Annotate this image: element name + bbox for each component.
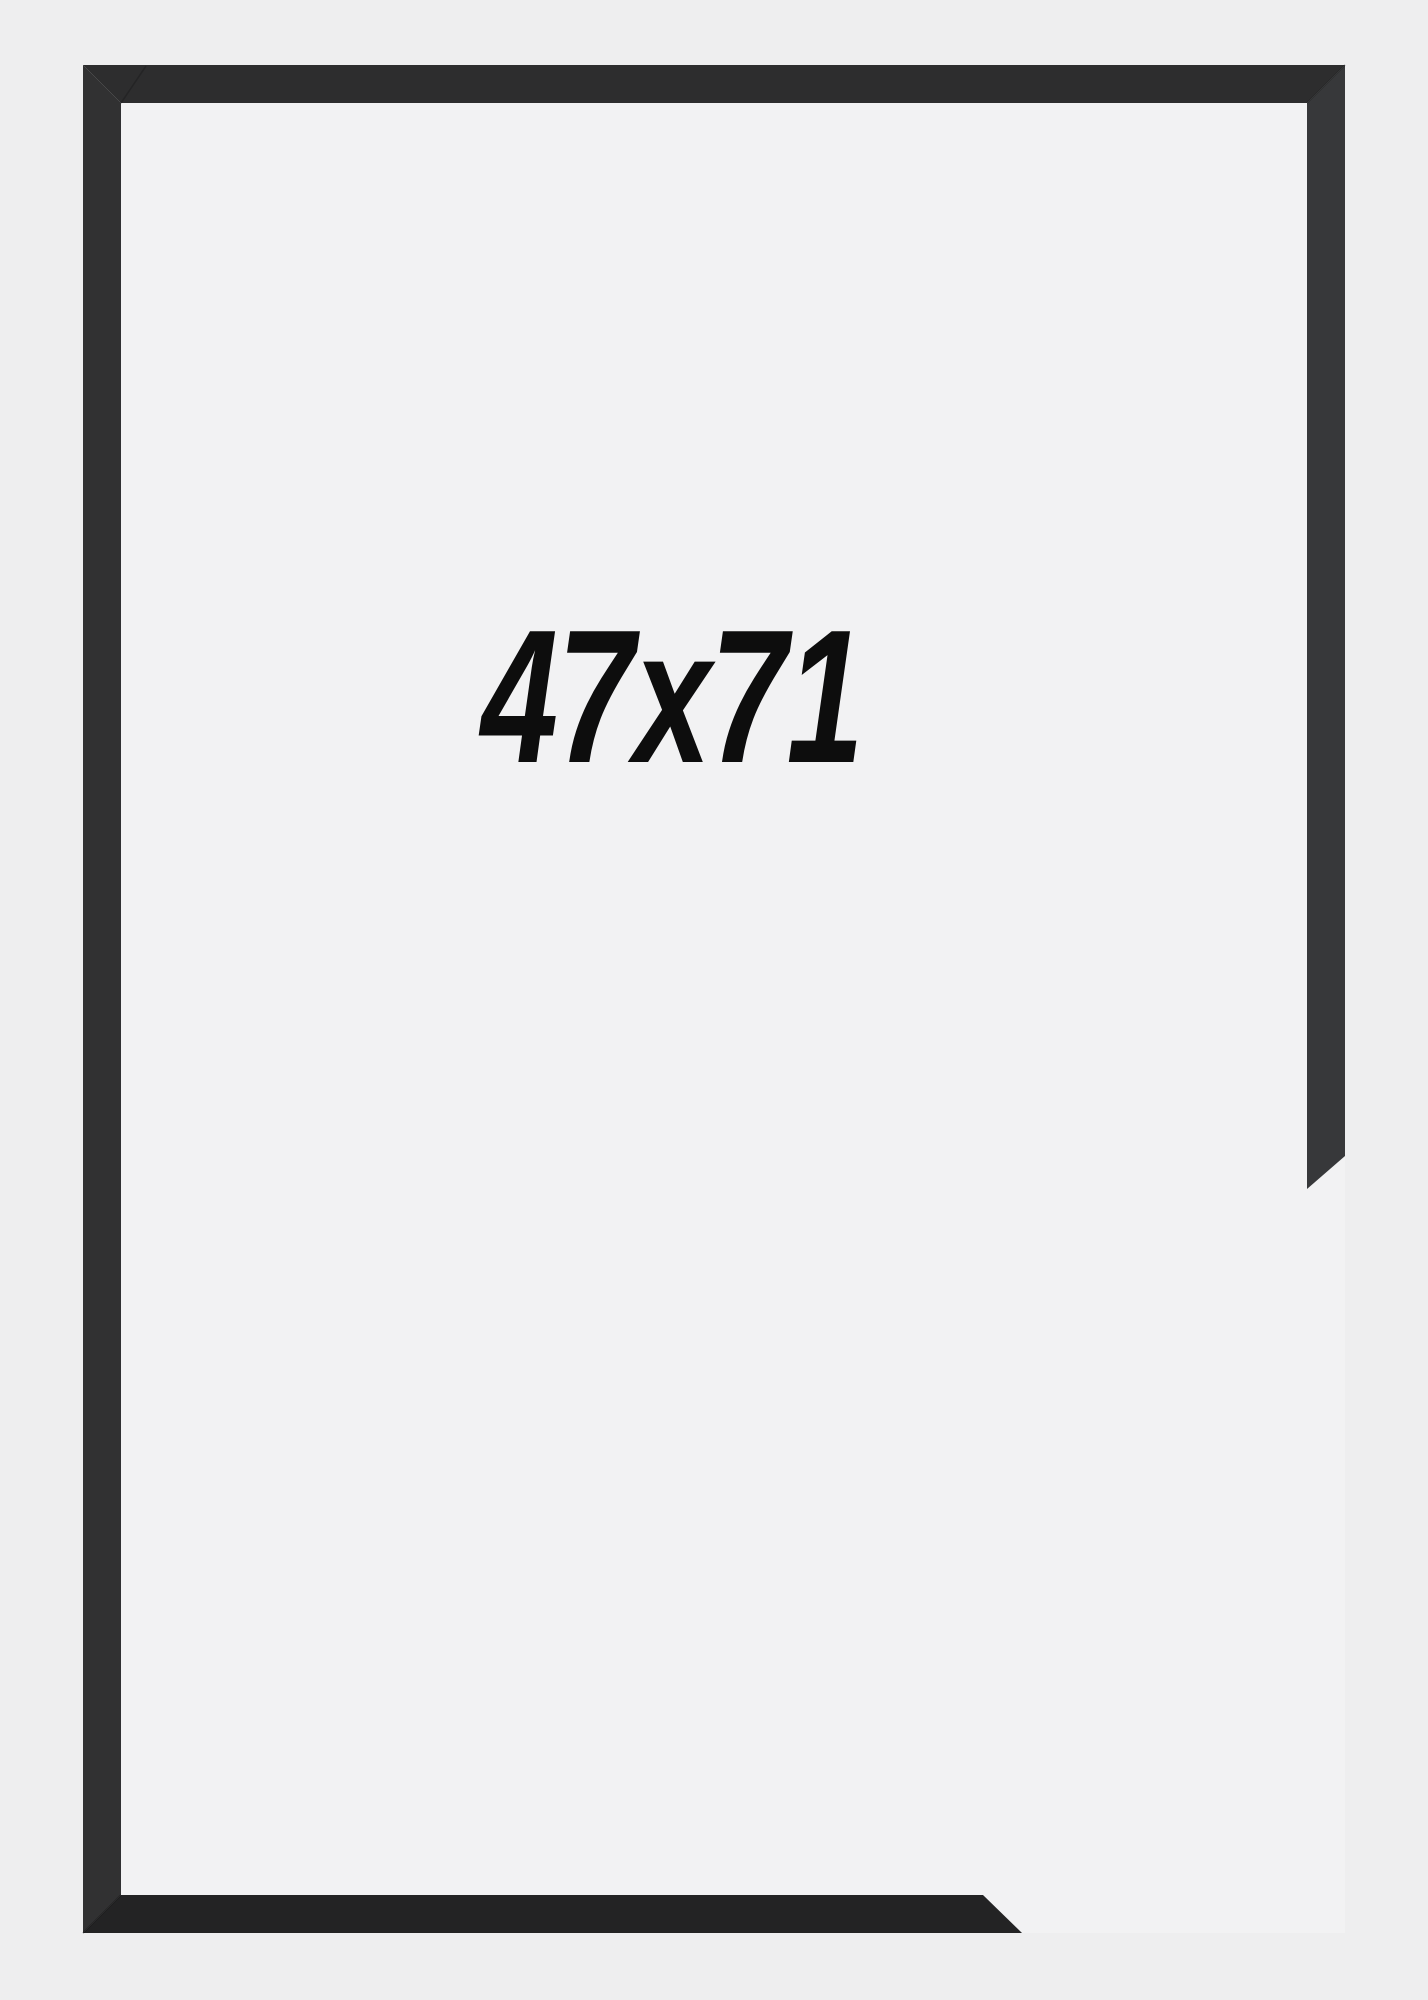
- frame-product-graphic: [0, 0, 1428, 2000]
- size-label: 47x71: [481, 602, 863, 792]
- frame-left-bar: [83, 65, 121, 1933]
- frame-product-image: 47x71: [0, 0, 1428, 2000]
- frame-top-bar: [83, 65, 1345, 103]
